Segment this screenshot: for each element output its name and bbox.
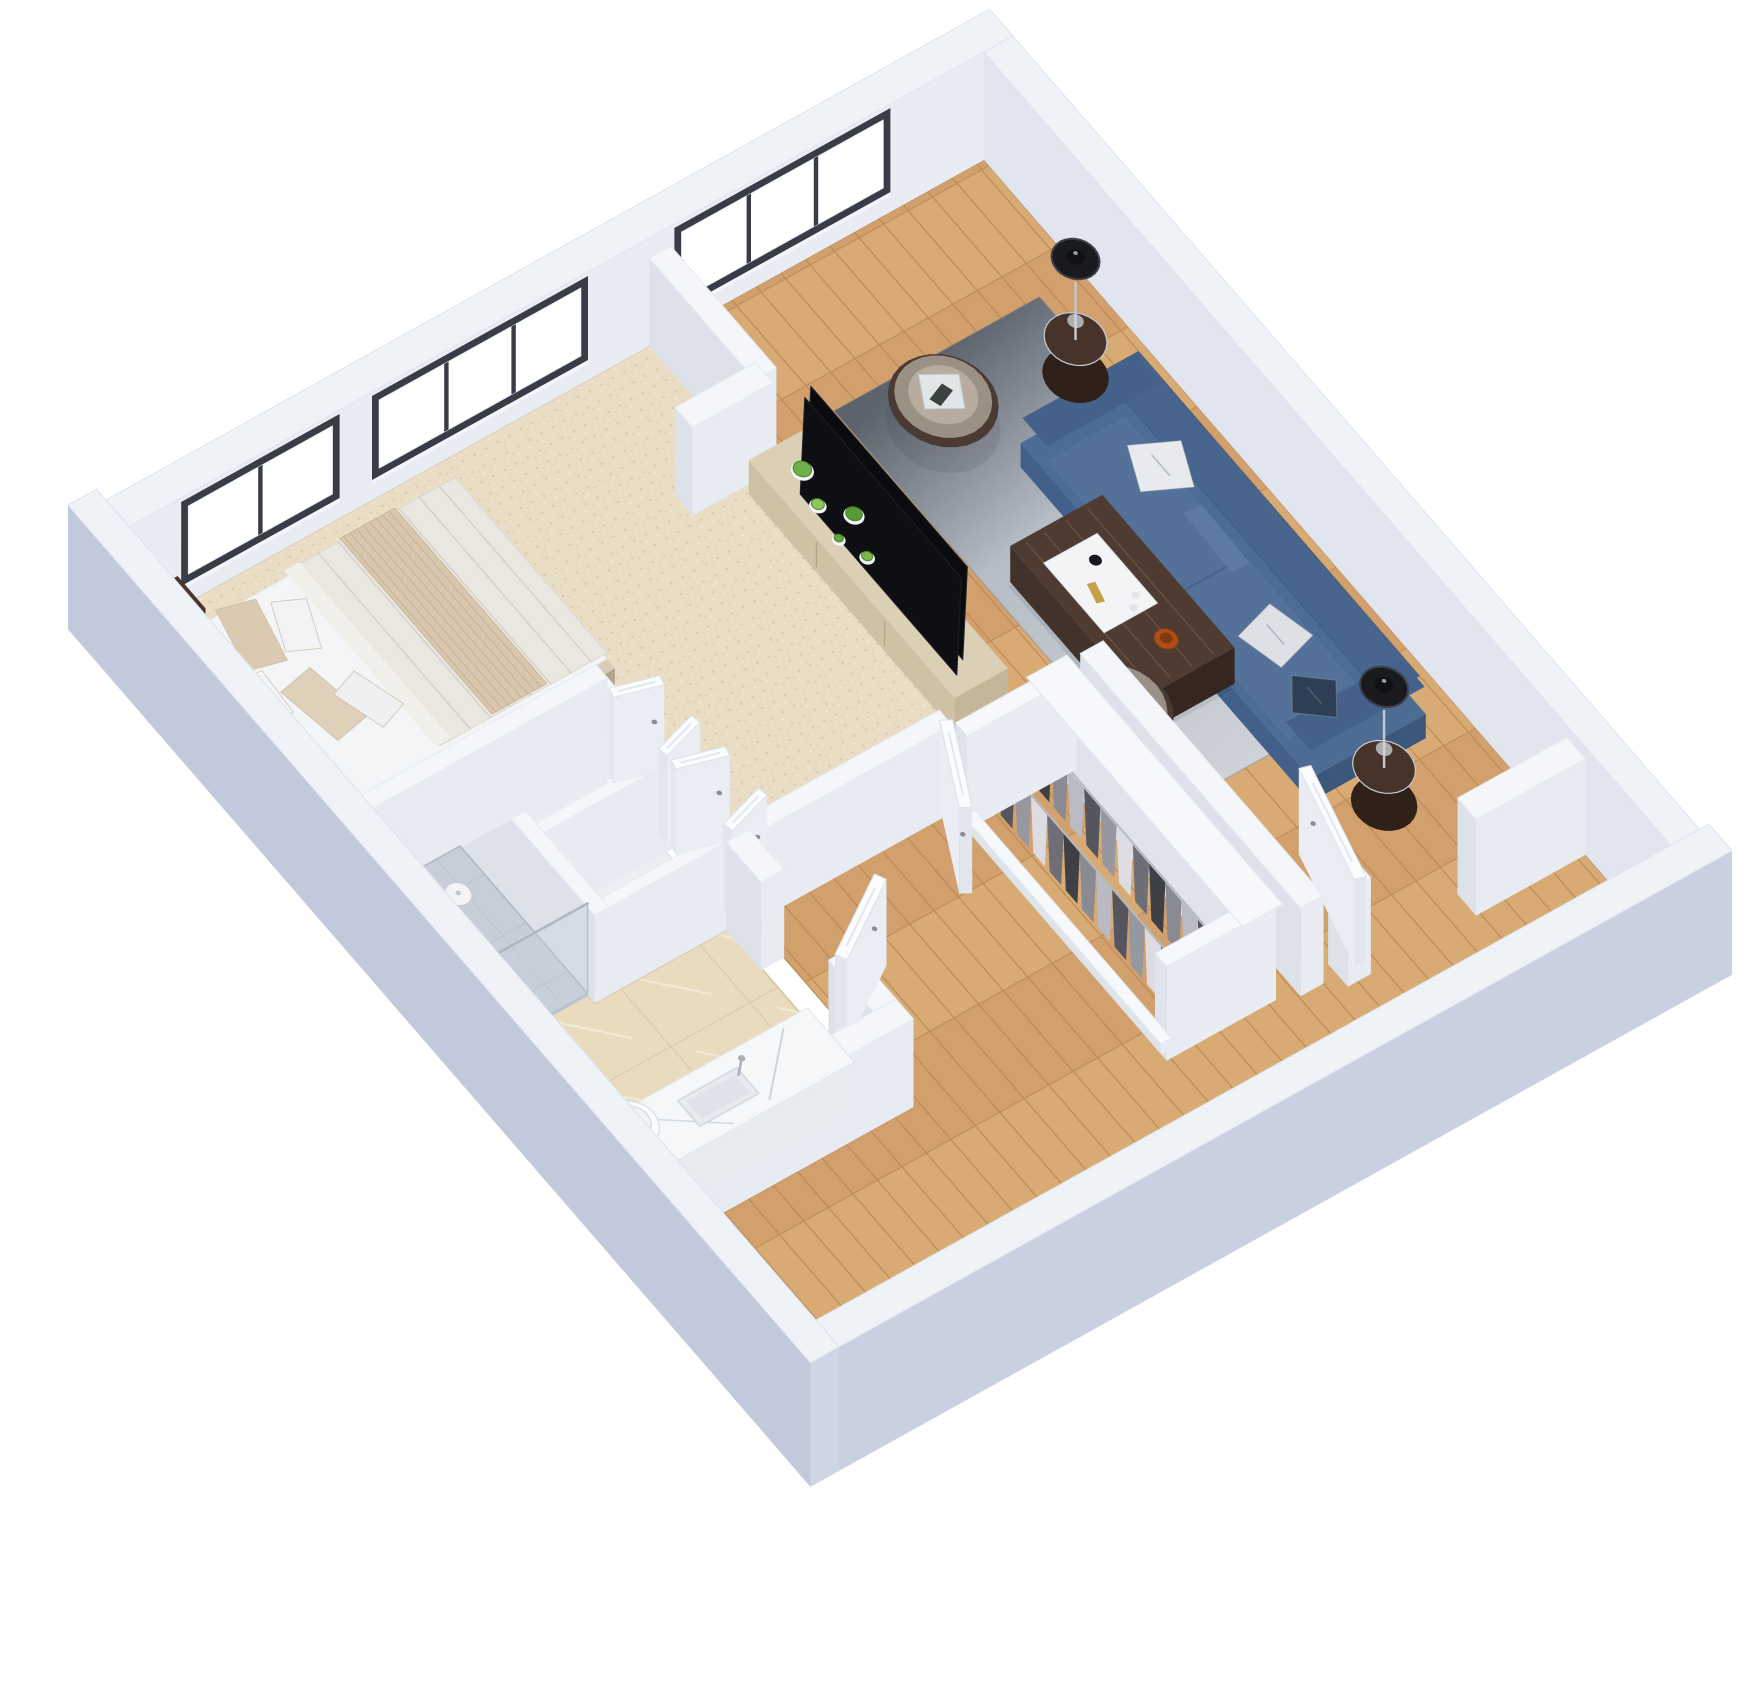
- apartment-3d-floorplan: [0, 0, 1744, 1696]
- closet-door-1a: [609, 676, 664, 784]
- closet-door-2a: [671, 746, 730, 855]
- floorplan-stage: [0, 0, 1744, 1696]
